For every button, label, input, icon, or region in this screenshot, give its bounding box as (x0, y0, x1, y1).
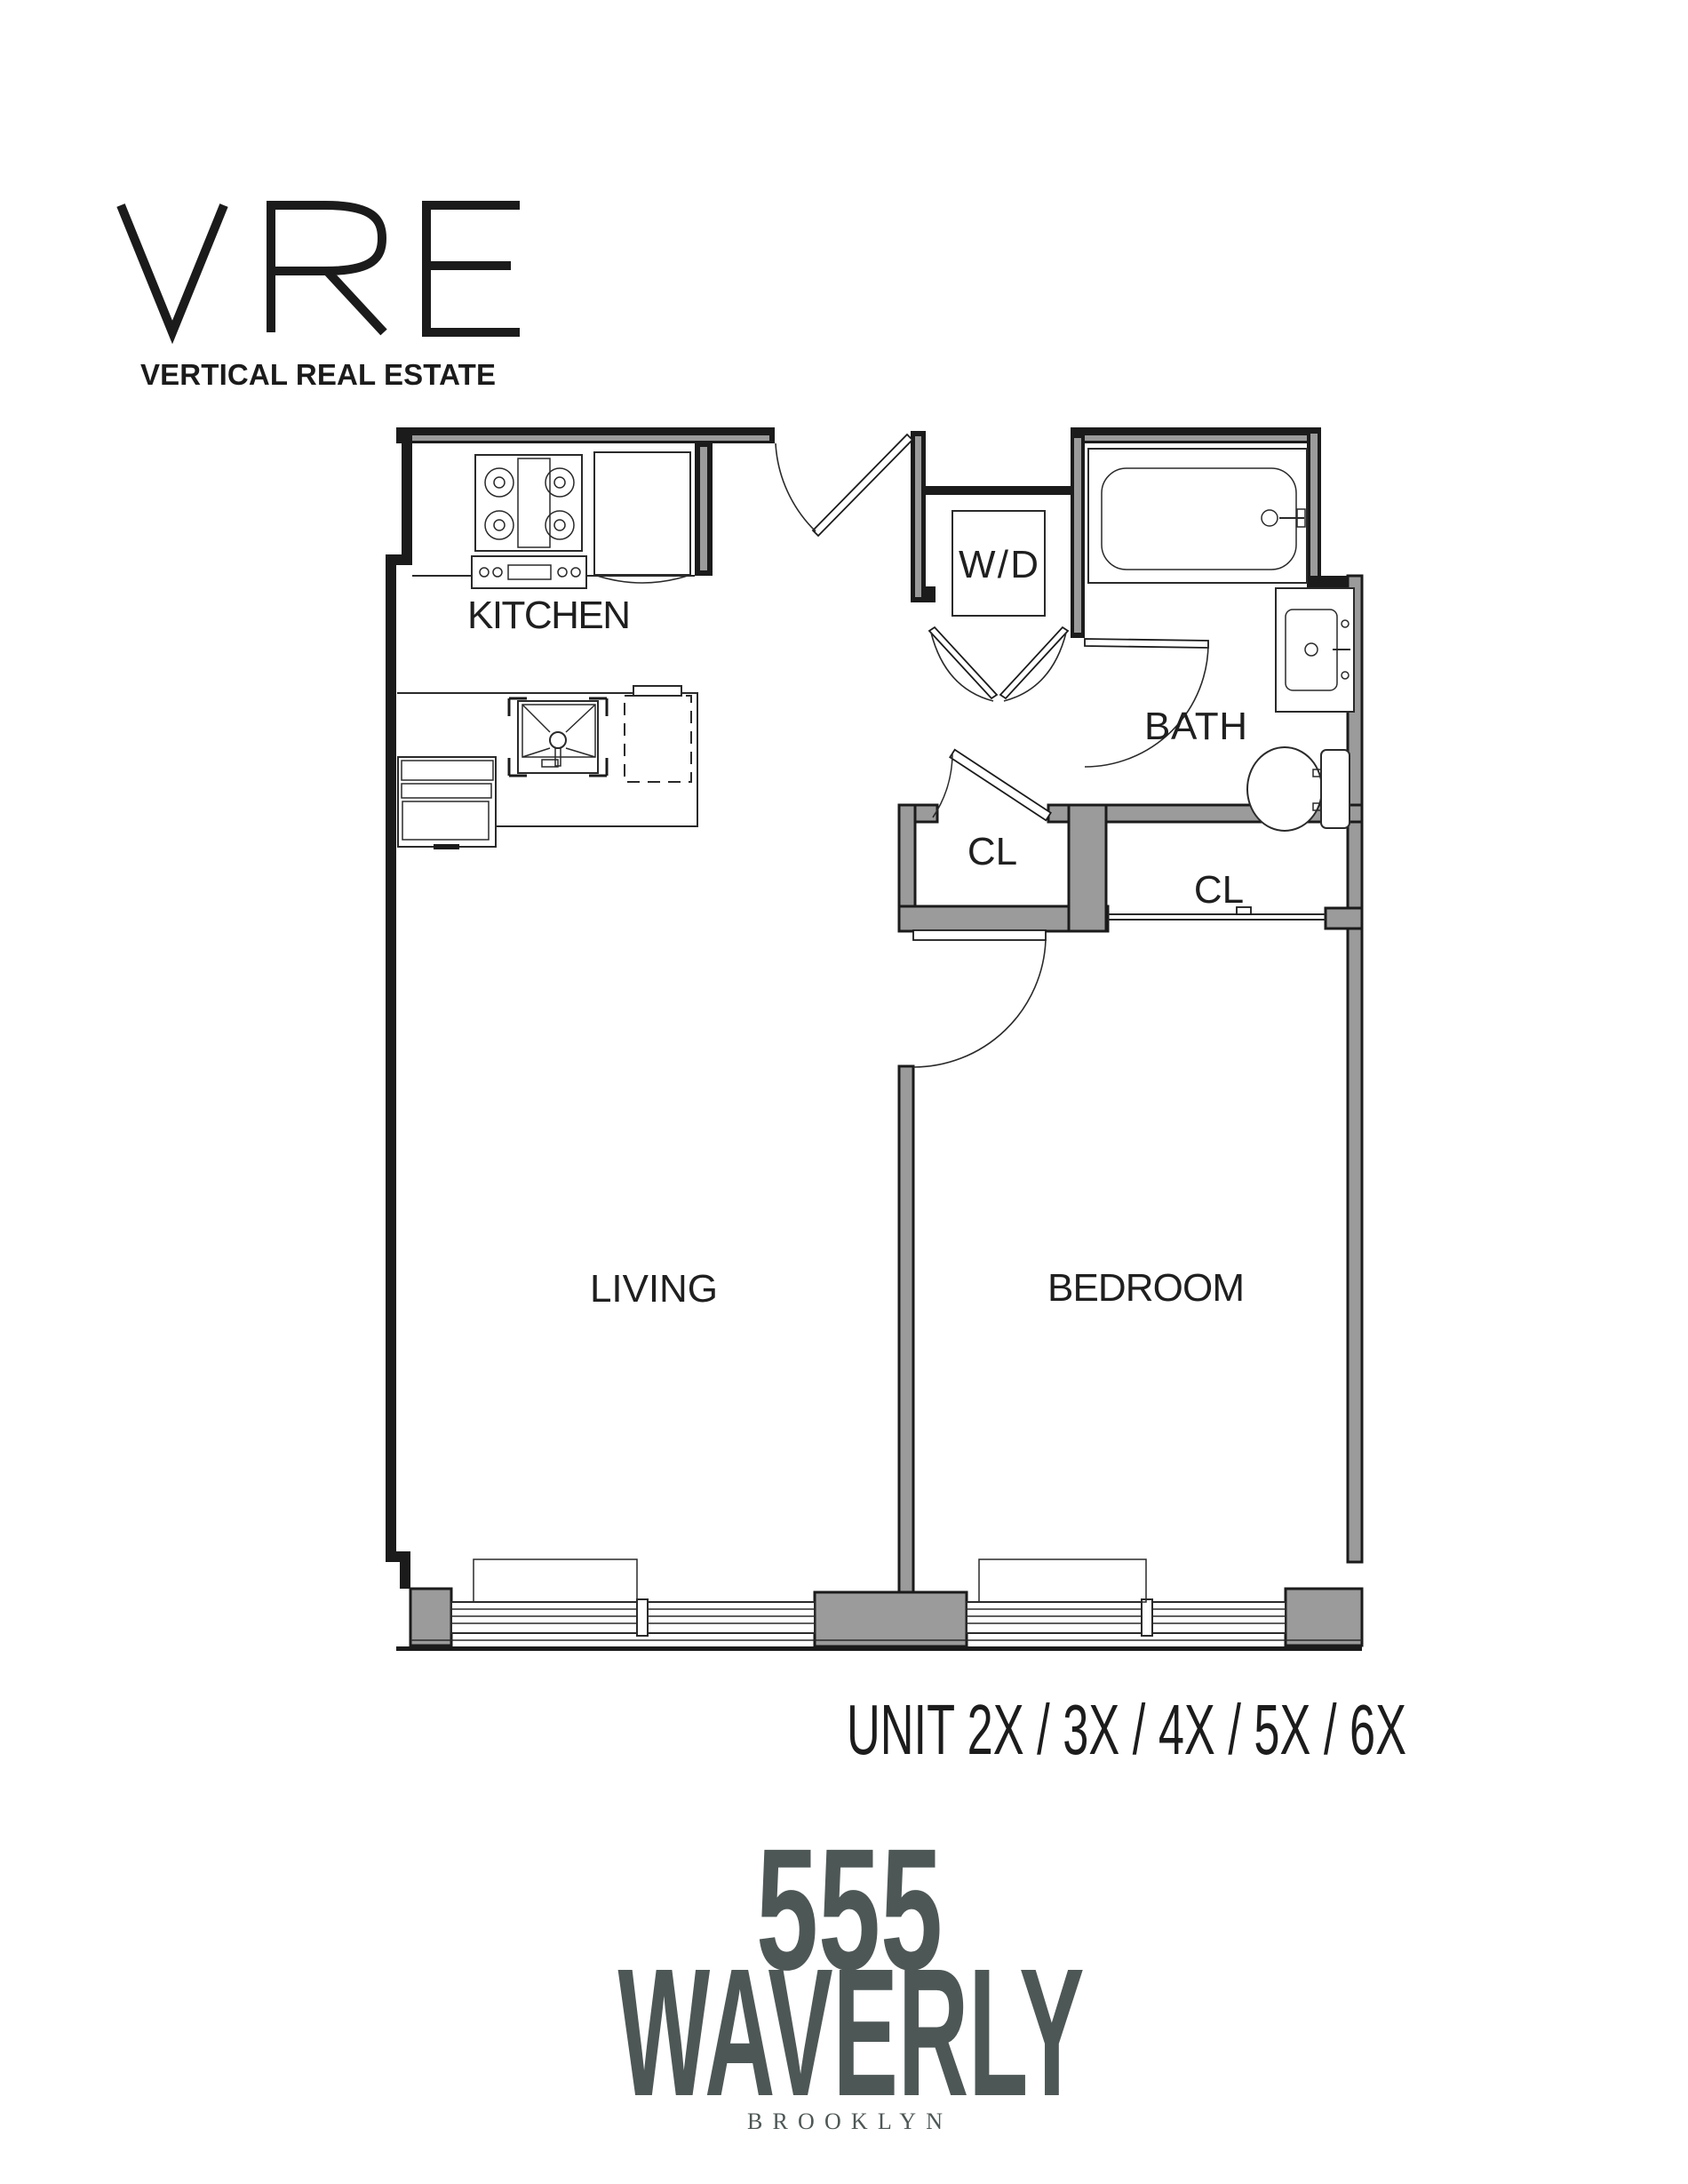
label-bath: BATH (1144, 705, 1247, 748)
wall-entry-foot (926, 586, 936, 602)
cabinet-tab (434, 844, 459, 849)
wall-top-bath-core (1076, 435, 1316, 441)
wall-left-lower (386, 554, 396, 1562)
label-kitchen: KITCHEN (467, 594, 631, 637)
wall-wd-top (926, 486, 1071, 495)
wall-kitchen-pier-core (700, 447, 707, 570)
bedroom-door-arc (913, 940, 1046, 1067)
wall-left-bottom-stub (400, 1562, 410, 1589)
label-living: LIVING (590, 1267, 718, 1311)
floor-plan-canvas: VRE VERTICAL REAL ESTATE (0, 0, 1688, 2184)
floor-plan-page: VRE VERTICAL REAL ESTATE (0, 0, 1688, 2184)
bedroom-door-leaf (913, 930, 1046, 940)
wd-door-leaf-left (929, 627, 997, 698)
hall-closet-door-leaf (950, 750, 1050, 820)
toilet-tank (1321, 750, 1350, 828)
entry-door-arc (776, 443, 816, 531)
bath-door-leaf (1085, 639, 1208, 648)
unit-designation: UNIT 2X / 3X / 4X / 5X / 6X (847, 1690, 1406, 1769)
toilet-bowl (1247, 747, 1322, 831)
wall-between-closets (1069, 805, 1106, 931)
wall-entry-right-core (915, 436, 921, 597)
building-name: WAVERLY (618, 1931, 1085, 2134)
kitchen-faucet (550, 732, 566, 748)
label-bedroom: BEDROOM (1047, 1266, 1245, 1310)
brand-tagline: VERTICAL REAL ESTATE (140, 358, 496, 391)
wd-door-leaf-right (1000, 627, 1068, 698)
wall-top-kitchen-core (402, 435, 769, 441)
wall-bath-left-core (1074, 438, 1081, 633)
heating-unit-living (474, 1559, 637, 1602)
building-logo: 555 WAVERLY BROOKLYN (618, 1813, 1085, 2134)
window-bedroom-1 (967, 1602, 1142, 1633)
window-bedroom-2 (1152, 1602, 1286, 1633)
label-closet-hall: CL (967, 830, 1017, 873)
window-mullion-living (637, 1599, 648, 1636)
pier-bottom-left (410, 1589, 451, 1646)
vre-letter-r (271, 205, 384, 332)
kitchen-fixtures (397, 452, 697, 849)
label-closet-bedroom: CL (1194, 868, 1244, 912)
wall-partition-living-bedroom (899, 1066, 913, 1592)
window-mullion-bedroom (1142, 1599, 1152, 1636)
vre-letter-e (426, 205, 520, 332)
entry-door-leaf (813, 434, 912, 536)
room-labels: KITCHEN W/D BATH CL CL LIVING BEDROOM (467, 543, 1247, 1311)
vre-logo: VRE VERTICAL REAL ESTATE (121, 205, 520, 391)
dishwasher-handle (633, 686, 681, 696)
window-living-1 (451, 1602, 637, 1633)
pier-bottom-right (1286, 1589, 1362, 1646)
dishwasher (625, 696, 691, 782)
refrigerator (594, 452, 690, 575)
label-washer-dryer: W/D (959, 543, 1039, 586)
window-living-2 (648, 1602, 815, 1633)
wall-closet-right-pier (1326, 908, 1362, 929)
heating-unit-bedroom (979, 1559, 1146, 1602)
wall-right-lower (1348, 576, 1362, 1562)
wall-left-upper (402, 427, 412, 565)
pier-window-center (815, 1592, 967, 1646)
wall-left-bottom-step (386, 1551, 410, 1562)
wall-right-upper-core (1310, 434, 1318, 577)
